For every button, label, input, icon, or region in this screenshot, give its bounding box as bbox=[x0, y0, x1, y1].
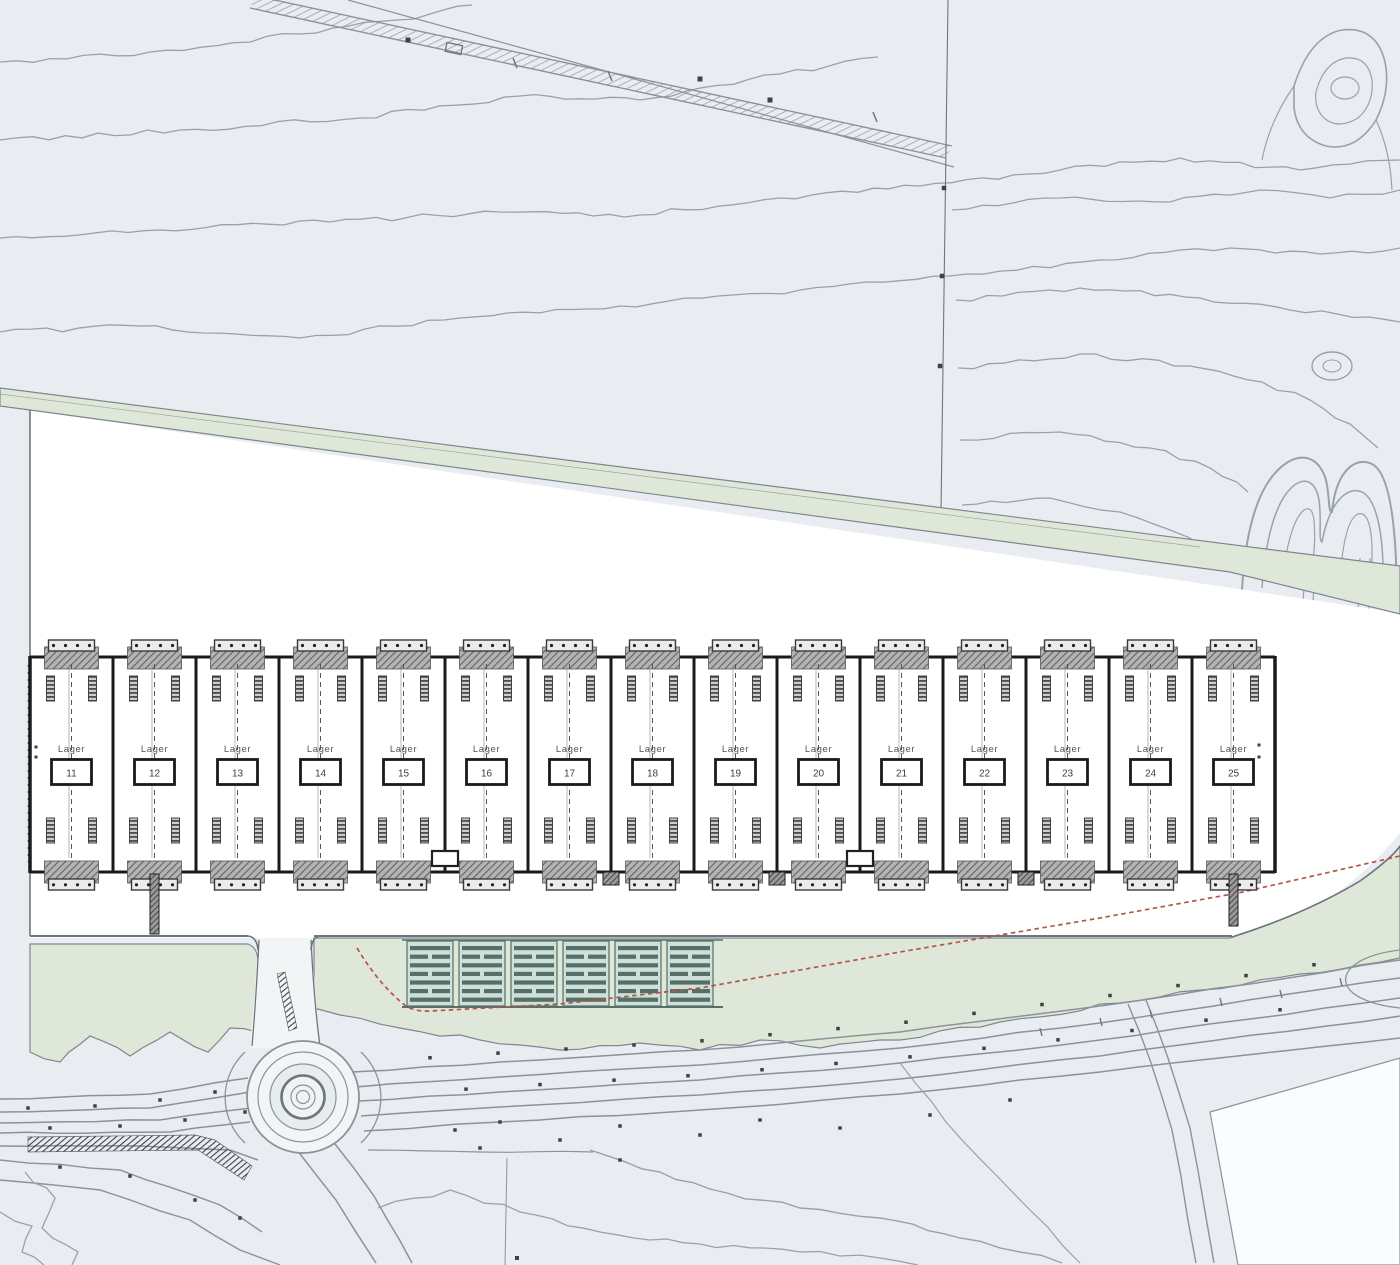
unit-number: 23 bbox=[1062, 769, 1074, 780]
site-plan-map: Lager11Lager12Lager13Lager14Lager15Lager… bbox=[0, 0, 1400, 1265]
unit-number: 18 bbox=[647, 769, 659, 780]
unit-label: Lager bbox=[141, 744, 168, 755]
unit-number: 16 bbox=[481, 769, 493, 780]
unit-number: 14 bbox=[315, 769, 327, 780]
unit-number: 22 bbox=[979, 769, 991, 780]
unit-label: Lager bbox=[1220, 744, 1247, 755]
section-marker bbox=[150, 874, 159, 934]
unit-label: Lager bbox=[971, 744, 998, 755]
unit-label: Lager bbox=[888, 744, 915, 755]
unit-label: Lager bbox=[556, 744, 583, 755]
unit-label: Lager bbox=[1054, 744, 1081, 755]
unit-label: Lager bbox=[390, 744, 417, 755]
unit-number: 20 bbox=[813, 769, 825, 780]
unit-number: 13 bbox=[232, 769, 244, 780]
unit-number: 24 bbox=[1145, 769, 1157, 780]
unit-number: 11 bbox=[66, 769, 77, 780]
unit-number: 21 bbox=[896, 769, 908, 780]
unit-number: 17 bbox=[564, 769, 576, 780]
unit-number: 12 bbox=[149, 769, 161, 780]
section-marker bbox=[1229, 874, 1238, 926]
unit-label: Lager bbox=[639, 744, 666, 755]
unit-number: 19 bbox=[730, 769, 742, 780]
unit-label: Lager bbox=[224, 744, 251, 755]
site-plan-page: Lager11Lager12Lager13Lager14Lager15Lager… bbox=[0, 0, 1400, 1265]
unit-label: Lager bbox=[1137, 744, 1164, 755]
unit-label: Lager bbox=[805, 744, 832, 755]
unit-label: Lager bbox=[307, 744, 334, 755]
access-road bbox=[250, 938, 320, 1048]
parking-area bbox=[402, 940, 723, 1007]
unit-number: 15 bbox=[398, 769, 410, 780]
unit-label: Lager bbox=[722, 744, 749, 755]
unit-number: 25 bbox=[1228, 769, 1240, 780]
unit-label: Lager bbox=[473, 744, 500, 755]
unit-label: Lager bbox=[58, 744, 85, 755]
